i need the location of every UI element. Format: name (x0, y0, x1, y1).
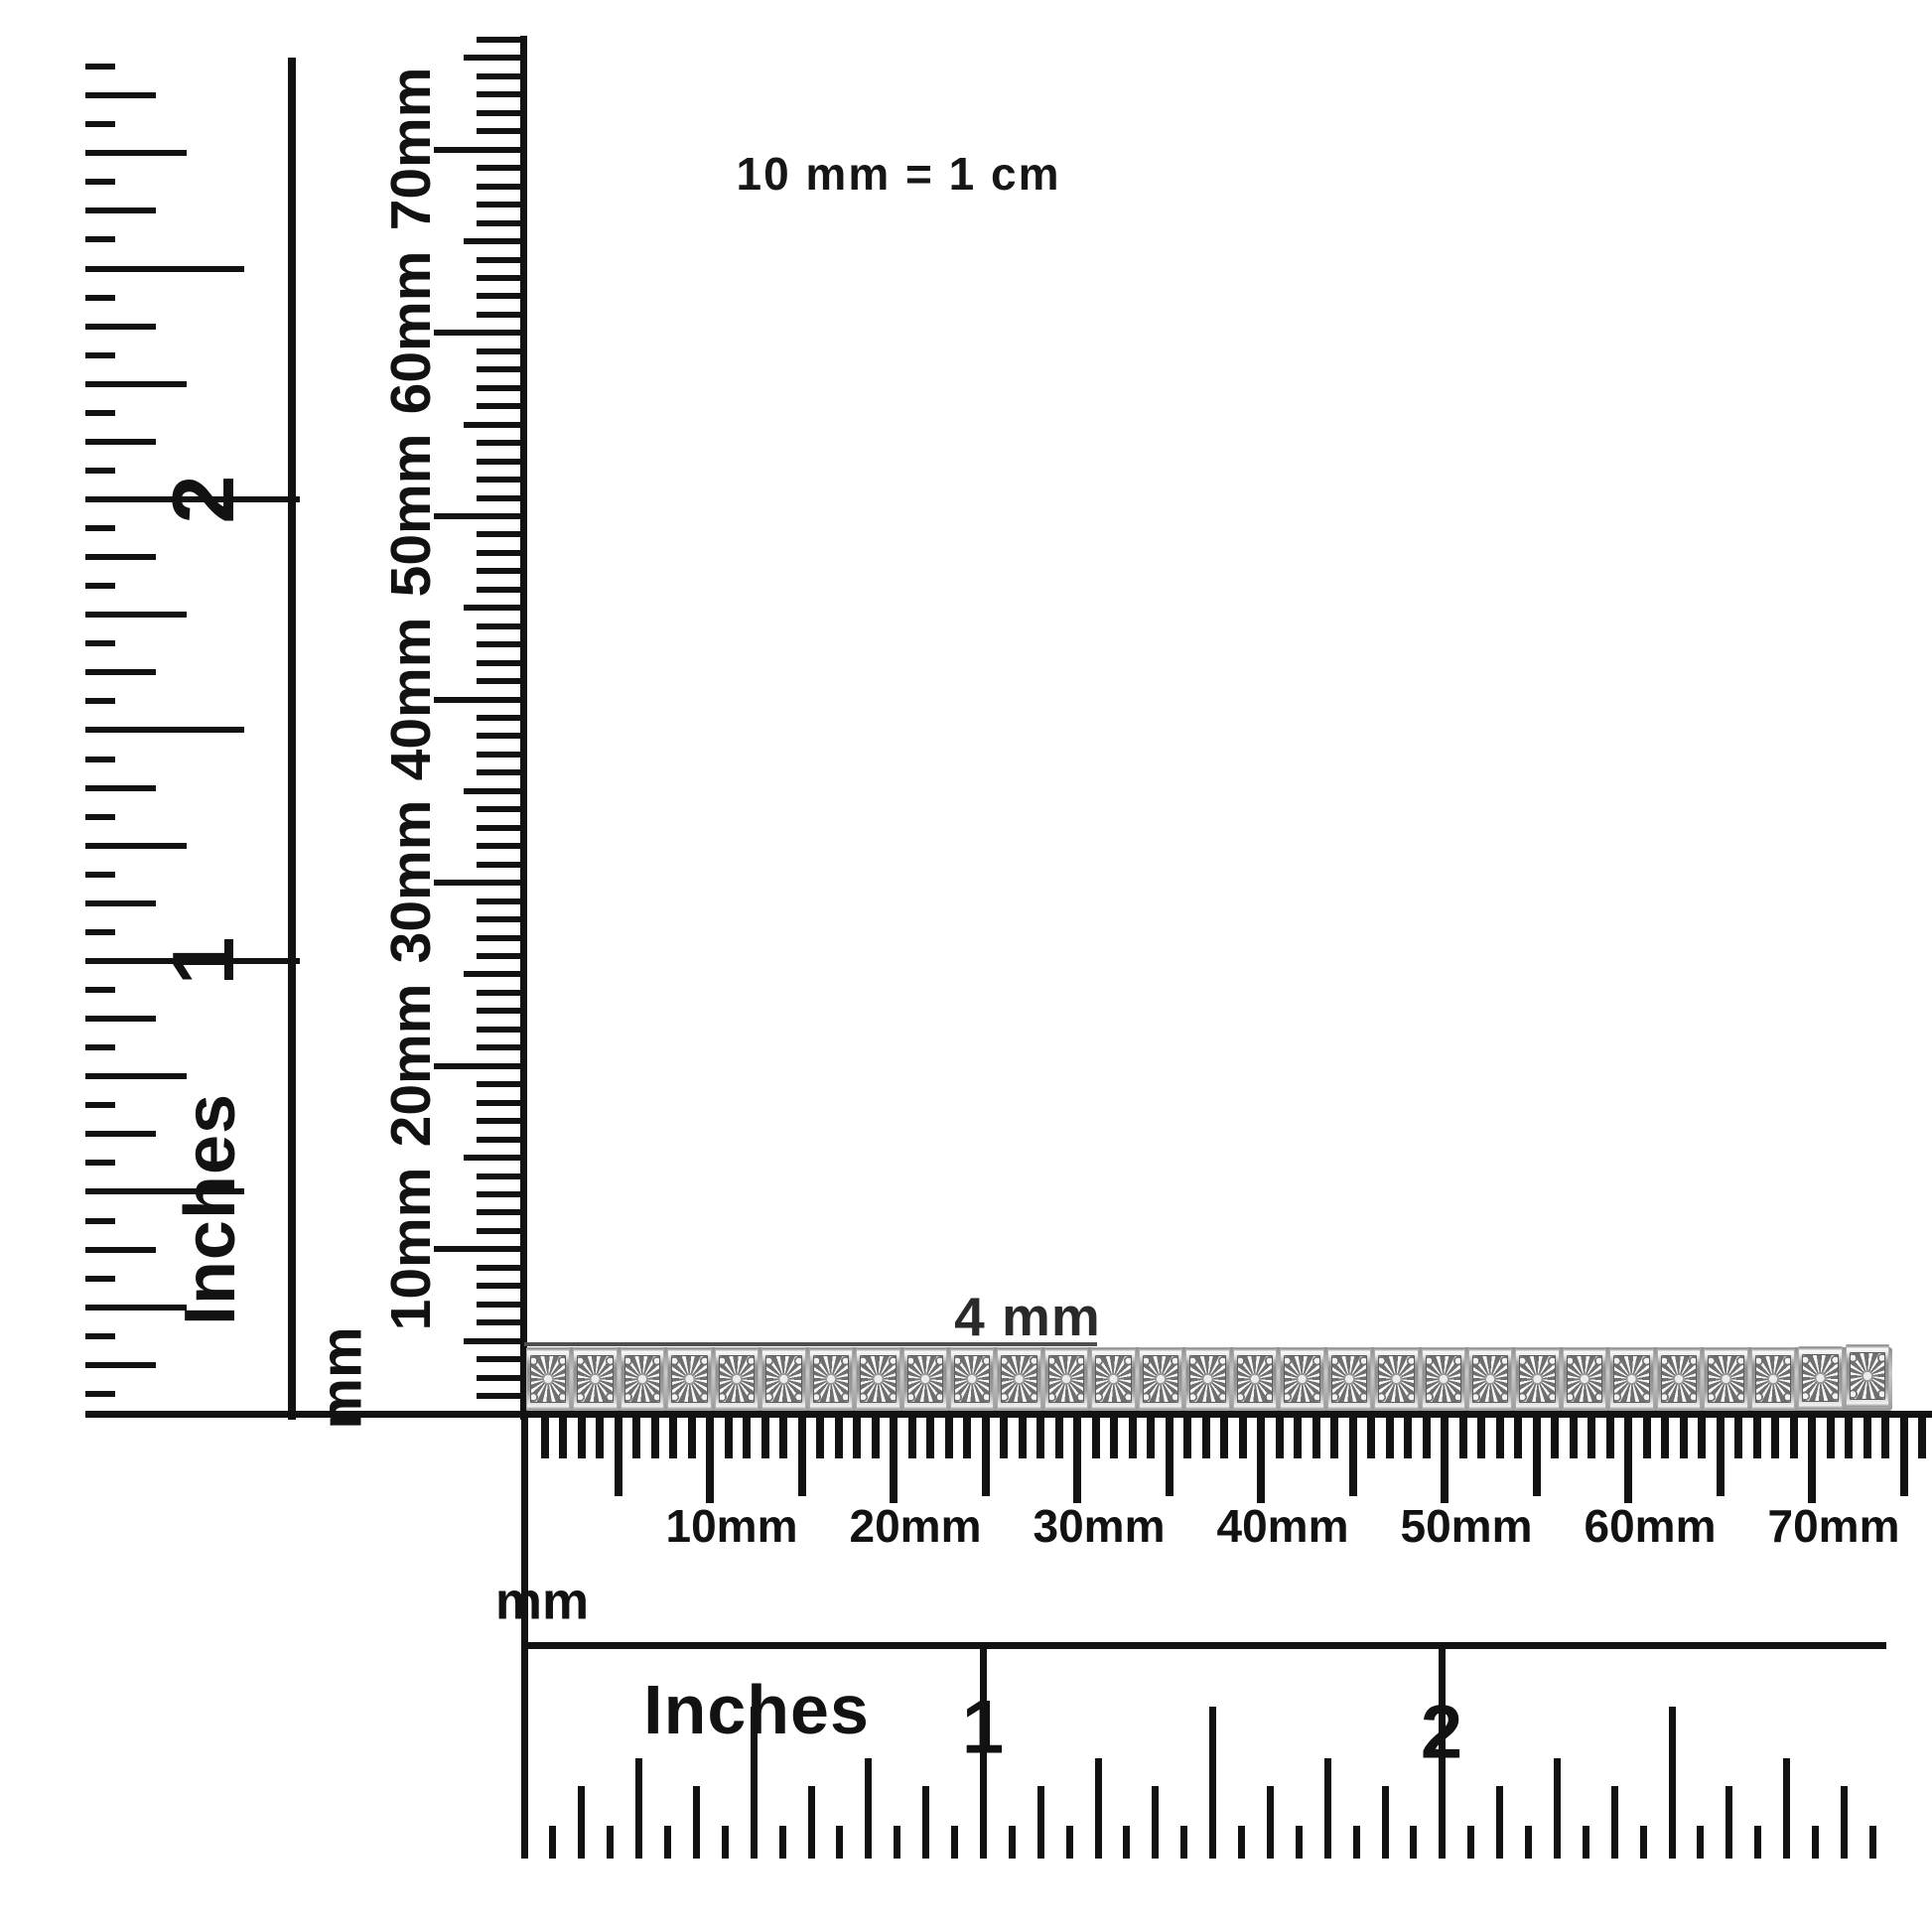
mm-tick (872, 1418, 880, 1458)
illusion-sunburst-plate (1661, 1355, 1697, 1403)
inch-numeral: 1 (962, 1685, 1004, 1771)
mm-tick (477, 953, 523, 959)
inch-tick (1496, 1786, 1503, 1859)
mm-tick (477, 1137, 523, 1143)
mm-tick (1533, 1418, 1541, 1496)
inch-tick (836, 1826, 843, 1859)
mm-tick (706, 1418, 714, 1503)
horizontal-mm-edge-line (85, 1411, 1932, 1418)
mm-tick (477, 733, 523, 739)
mm-tick (541, 1418, 549, 1458)
bracelet-link (809, 1347, 853, 1411)
mm-tick (926, 1418, 934, 1458)
mm-tick (464, 788, 523, 794)
inch-numeral: 1 (153, 937, 254, 986)
inch-tick (808, 1786, 815, 1859)
mm-tick (963, 1418, 971, 1458)
mm-tick (596, 1418, 604, 1458)
inch-tick (85, 698, 115, 704)
inch-tick (85, 785, 156, 791)
inch-tick (1669, 1707, 1676, 1859)
bracelet-link (1515, 1347, 1559, 1411)
mm-tick (1073, 1418, 1081, 1503)
inch-tick (578, 1786, 585, 1859)
inch-tick (85, 612, 187, 618)
inch-tick (85, 814, 115, 820)
inch-tick (693, 1786, 700, 1859)
mm-tick-label: 60mm (1585, 1499, 1717, 1553)
bracelet-link (1185, 1347, 1229, 1411)
mm-tick (1183, 1418, 1191, 1458)
mm-tick (1881, 1418, 1889, 1458)
mm-tick (1845, 1418, 1853, 1458)
mm-tick (477, 37, 523, 43)
mm-tick-label: 10mm (666, 1499, 798, 1553)
mm-tick (477, 440, 523, 446)
inch-tick (1152, 1786, 1159, 1859)
inch-tick (85, 295, 115, 301)
bracelet-link (1657, 1347, 1701, 1411)
inch-tick (85, 1333, 115, 1339)
mm-tick (688, 1418, 696, 1458)
mm-tick (1496, 1418, 1504, 1458)
mm-tick (1276, 1418, 1284, 1458)
mm-tick (816, 1418, 824, 1458)
inch-tick (1583, 1826, 1589, 1859)
inch-tick (1095, 1758, 1102, 1859)
inch-tick (85, 843, 187, 849)
inch-tick (85, 727, 244, 733)
mm-tick (434, 330, 523, 336)
mm-tick (477, 293, 523, 299)
mm-tick (1092, 1418, 1100, 1458)
mm-tick (477, 660, 523, 666)
mm-tick (1606, 1418, 1614, 1458)
inch-tick (1382, 1786, 1389, 1859)
inch-tick (85, 757, 115, 762)
bracelet-link (715, 1347, 759, 1411)
illusion-sunburst-plate (671, 1355, 707, 1403)
mm-tick-label: 70mm (1768, 1499, 1900, 1553)
mm-tick (477, 403, 523, 409)
mm-tick (798, 1418, 806, 1496)
mm-tick (669, 1418, 677, 1458)
illusion-sunburst-plate (624, 1355, 660, 1403)
mm-tick (477, 806, 523, 812)
inch-tick (85, 1131, 156, 1137)
mm-tick (477, 73, 523, 79)
mm-tick (1330, 1418, 1338, 1458)
mm-tick (632, 1418, 640, 1458)
mm-tick (1624, 1418, 1632, 1503)
mm-tick (1294, 1418, 1302, 1458)
bracelet-link (1846, 1344, 1889, 1408)
mm-tick (477, 202, 523, 207)
bracelet-link (1280, 1347, 1323, 1411)
mm-tick-label: 10mm (378, 1167, 444, 1330)
mm-tick (1386, 1418, 1394, 1458)
mm-tick (477, 1302, 523, 1308)
mm-tick (464, 971, 523, 977)
bracelet-link (1751, 1347, 1795, 1411)
mm-tick (477, 1265, 523, 1271)
inch-tick (85, 1188, 244, 1194)
mm-tick (477, 1319, 523, 1325)
mm-tick (1220, 1418, 1228, 1458)
mm-tick (1367, 1418, 1375, 1458)
mm-tick (477, 1356, 523, 1362)
mm-tick (779, 1418, 787, 1458)
mm-tick-label: 30mm (1034, 1499, 1166, 1553)
illusion-sunburst-plate (860, 1355, 896, 1403)
inch-tick (85, 179, 115, 185)
inch-tick (751, 1707, 758, 1859)
bracelet-link (1374, 1347, 1418, 1411)
illusion-sunburst-plate (530, 1355, 566, 1403)
bracelet-link (1563, 1347, 1606, 1411)
mm-tick (1423, 1418, 1431, 1458)
mm-tick (434, 147, 523, 153)
inch-tick (607, 1826, 614, 1859)
illusion-sunburst-plate (1331, 1355, 1367, 1403)
mm-tick (477, 825, 523, 831)
inch-tick (1869, 1826, 1876, 1859)
mm-tick (477, 1173, 523, 1179)
bracelet-sizing-diagram: 10 mm = 1 cm Inches 21 mm 70mm60mm50mm40… (0, 0, 1932, 1932)
inch-tick (1525, 1826, 1532, 1859)
mm-tick (1019, 1418, 1027, 1458)
inch-tick (1812, 1826, 1819, 1859)
inch-tick (85, 324, 156, 330)
bracelet-link (1798, 1346, 1842, 1410)
illusion-sunburst-plate (1708, 1355, 1743, 1403)
inch-tick (85, 640, 115, 646)
mm-tick-label: 50mm (1401, 1499, 1533, 1553)
tennis-bracelet (526, 1347, 1892, 1411)
inch-tick (1754, 1826, 1761, 1859)
mm-tick (477, 477, 523, 483)
mm-tick (1570, 1418, 1578, 1458)
mm-tick-label: 50mm (378, 434, 444, 598)
mm-tick (477, 1191, 523, 1197)
inch-tick (85, 583, 115, 589)
bracelet-link (621, 1347, 664, 1411)
mm-tick (434, 697, 523, 703)
mm-tick (477, 348, 523, 354)
mm-tick (464, 422, 523, 428)
mm-tick (725, 1418, 733, 1458)
mm-tick (477, 916, 523, 922)
section-divider-line (521, 1642, 1886, 1649)
inch-tick (922, 1786, 929, 1859)
mm-tick (1055, 1418, 1063, 1458)
inch-tick (1123, 1826, 1130, 1859)
mm-tick (1312, 1418, 1320, 1458)
mm-tick (1734, 1418, 1742, 1458)
bracelet-link (1044, 1347, 1088, 1411)
bracelet-link (573, 1347, 617, 1411)
inch-tick (1783, 1758, 1790, 1859)
illusion-sunburst-plate (1189, 1355, 1225, 1403)
inch-tick (85, 64, 115, 69)
inch-tick (85, 352, 115, 358)
inch-numeral: 2 (1421, 1690, 1462, 1776)
mm-tick (477, 1044, 523, 1050)
inch-tick (1353, 1826, 1360, 1859)
mm-tick (982, 1418, 990, 1496)
scale-note: 10 mm = 1 cm (736, 147, 1060, 201)
mm-tick (434, 513, 523, 519)
mm-tick (464, 1155, 523, 1161)
mm-tick (477, 495, 523, 501)
inch-tick (85, 1391, 115, 1397)
illusion-sunburst-plate (1755, 1355, 1791, 1403)
mm-tick-label: 60mm (378, 250, 444, 414)
mm-tick (1717, 1418, 1725, 1496)
mm-tick-label: 20mm (378, 984, 444, 1148)
mm-tick (1036, 1418, 1044, 1458)
mm-tick (615, 1418, 622, 1496)
mm-tick (477, 1100, 523, 1106)
bracelet-link (1327, 1347, 1371, 1411)
bracelet-link (1233, 1347, 1277, 1411)
bracelet-link (950, 1347, 994, 1411)
mm-tick (477, 110, 523, 116)
mm-tick (890, 1418, 897, 1503)
mm-tick (945, 1418, 953, 1458)
mm-tick (908, 1418, 916, 1458)
inch-tick (85, 1073, 187, 1079)
mm-tick (1827, 1418, 1835, 1458)
inch-tick (85, 439, 156, 445)
mm-tick (477, 1283, 523, 1289)
inch-tick (1611, 1786, 1618, 1859)
horizontal-mm-unit-label: mm (495, 1572, 589, 1632)
inch-tick (85, 987, 115, 993)
inch-tick (1725, 1786, 1732, 1859)
mm-tick (477, 752, 523, 758)
mm-tick (1643, 1418, 1651, 1458)
illusion-sunburst-plate (1143, 1355, 1178, 1403)
inch-tick (85, 150, 187, 156)
mm-tick (477, 715, 523, 721)
mm-tick (559, 1418, 567, 1458)
bracelet-link (1468, 1347, 1512, 1411)
mm-tick (1587, 1418, 1595, 1458)
mm-tick-label: 70mm (378, 68, 444, 231)
illusion-sunburst-plate (1048, 1355, 1084, 1403)
inch-tick (1296, 1826, 1303, 1859)
mm-tick (1900, 1418, 1908, 1496)
mm-tick (1349, 1418, 1357, 1496)
mm-tick (1166, 1418, 1173, 1496)
mm-tick (477, 990, 523, 996)
mm-tick (651, 1418, 659, 1458)
inch-tick (85, 1044, 115, 1050)
inch-tick (85, 410, 115, 416)
inch-tick (85, 121, 115, 127)
mm-tick (1477, 1418, 1485, 1458)
bracelet-link (1422, 1347, 1465, 1411)
inch-tick (85, 468, 115, 474)
mm-tick (761, 1418, 769, 1458)
illusion-sunburst-plate (1237, 1355, 1273, 1403)
inch-tick (1640, 1826, 1647, 1859)
illusion-sunburst-plate (1802, 1354, 1838, 1402)
mm-tick (477, 623, 523, 629)
bracelet-link (1609, 1347, 1653, 1411)
mm-tick (477, 769, 523, 775)
mm-tick (477, 1209, 523, 1215)
illusion-sunburst-plate (1378, 1355, 1414, 1403)
inch-tick (85, 1247, 156, 1253)
mm-tick-label: 40mm (1217, 1499, 1349, 1553)
illusion-sunburst-plate (1284, 1355, 1319, 1403)
inch-tick (1238, 1826, 1245, 1859)
mm-tick (743, 1418, 751, 1458)
inch-tick (779, 1826, 786, 1859)
mm-tick (1459, 1418, 1467, 1458)
mm-tick (1661, 1418, 1669, 1458)
mm-tick (1514, 1418, 1522, 1458)
mm-tick (464, 1338, 523, 1344)
mm-tick (477, 641, 523, 647)
mm-tick (477, 312, 523, 318)
mm-tick (477, 1081, 523, 1087)
mm-tick (477, 1393, 523, 1399)
mm-tick (1771, 1418, 1779, 1458)
illusion-sunburst-plate (1567, 1355, 1602, 1403)
vertical-inches-unit-label: Inches (170, 1093, 251, 1325)
mm-tick (477, 531, 523, 537)
inch-tick (951, 1826, 958, 1859)
inch-tick (1841, 1786, 1848, 1859)
mm-tick (464, 605, 523, 611)
mm-tick (477, 128, 523, 134)
illusion-sunburst-plate (577, 1355, 613, 1403)
illusion-sunburst-plate (954, 1355, 990, 1403)
mm-tick (1202, 1418, 1210, 1458)
mm-tick (477, 843, 523, 849)
inch-tick (664, 1826, 671, 1859)
bracelet-link (526, 1347, 570, 1411)
bracelet-link (761, 1347, 805, 1411)
mm-tick (1698, 1418, 1706, 1458)
mm-tick (1808, 1418, 1816, 1503)
annotation-label: 4 mm (954, 1285, 1101, 1348)
mm-tick (1110, 1418, 1118, 1458)
inch-tick (85, 1305, 187, 1311)
mm-tick (853, 1418, 861, 1458)
mm-tick (477, 165, 523, 171)
inch-tick (1066, 1826, 1073, 1859)
mm-tick-label: 40mm (378, 617, 444, 780)
inch-tick (85, 900, 156, 906)
inch-tick (1009, 1826, 1016, 1859)
inch-tick (635, 1758, 642, 1859)
bracelet-link (856, 1347, 899, 1411)
mm-tick (477, 1118, 523, 1124)
illusion-sunburst-plate (1472, 1355, 1508, 1403)
inch-tick (85, 266, 244, 272)
mm-tick (477, 459, 523, 465)
illusion-sunburst-plate (1613, 1355, 1649, 1403)
mm-tick (434, 1246, 523, 1252)
bracelet-link (997, 1347, 1040, 1411)
inch-tick (549, 1826, 556, 1859)
mm-tick (477, 935, 523, 941)
inch-tick (894, 1826, 900, 1859)
inch-tick (85, 92, 156, 98)
inch-tick (1180, 1826, 1187, 1859)
mm-tick (1863, 1418, 1871, 1458)
inch-tick (85, 1276, 115, 1282)
mm-tick (1680, 1418, 1688, 1458)
mm-tick (1000, 1418, 1008, 1458)
inch-tick (1267, 1786, 1274, 1859)
illusion-sunburst-plate (765, 1355, 801, 1403)
mm-tick (434, 880, 523, 886)
mm-tick-label: 20mm (850, 1499, 982, 1553)
mm-tick (1257, 1418, 1265, 1503)
inch-tick (85, 207, 156, 213)
horizontal-inches-edge-line (521, 1411, 528, 1859)
inch-tick (1209, 1707, 1216, 1859)
mm-tick (477, 275, 523, 281)
mm-tick (477, 366, 523, 372)
mm-tick (1790, 1418, 1798, 1458)
mm-tick (477, 678, 523, 684)
inch-tick (1467, 1826, 1474, 1859)
mm-tick (477, 550, 523, 556)
vertical-inches-edge-line (288, 58, 296, 1420)
mm-tick (835, 1418, 843, 1458)
inch-tick (85, 1160, 115, 1166)
bracelet-link (1704, 1347, 1747, 1411)
illusion-sunburst-plate (1001, 1355, 1036, 1403)
inch-tick (85, 669, 156, 675)
bracelet-link (667, 1347, 711, 1411)
mm-tick (1918, 1418, 1926, 1458)
illusion-sunburst-plate (813, 1355, 849, 1403)
bracelet-link (1091, 1347, 1135, 1411)
inch-tick (1554, 1758, 1561, 1859)
mm-tick (464, 238, 523, 244)
mm-tick (477, 1027, 523, 1033)
illusion-sunburst-plate (907, 1355, 943, 1403)
illusion-sunburst-plate (719, 1355, 755, 1403)
inch-tick (1037, 1786, 1044, 1859)
mm-tick (578, 1418, 586, 1458)
inch-tick (85, 236, 115, 242)
mm-tick (477, 898, 523, 904)
mm-tick (1753, 1418, 1761, 1458)
illusion-sunburst-plate (1850, 1352, 1885, 1400)
mm-tick (477, 587, 523, 593)
mm-tick (1147, 1418, 1155, 1458)
mm-tick-label: 30mm (378, 800, 444, 964)
illusion-sunburst-plate (1095, 1355, 1131, 1403)
mm-tick (477, 220, 523, 226)
illusion-sunburst-plate (1519, 1355, 1555, 1403)
mm-tick (477, 1008, 523, 1014)
inch-tick (85, 554, 156, 560)
inch-tick (85, 872, 115, 878)
bracelet-link (1139, 1347, 1182, 1411)
inch-tick (85, 525, 115, 531)
inch-tick (85, 1362, 156, 1368)
mm-tick (477, 91, 523, 97)
